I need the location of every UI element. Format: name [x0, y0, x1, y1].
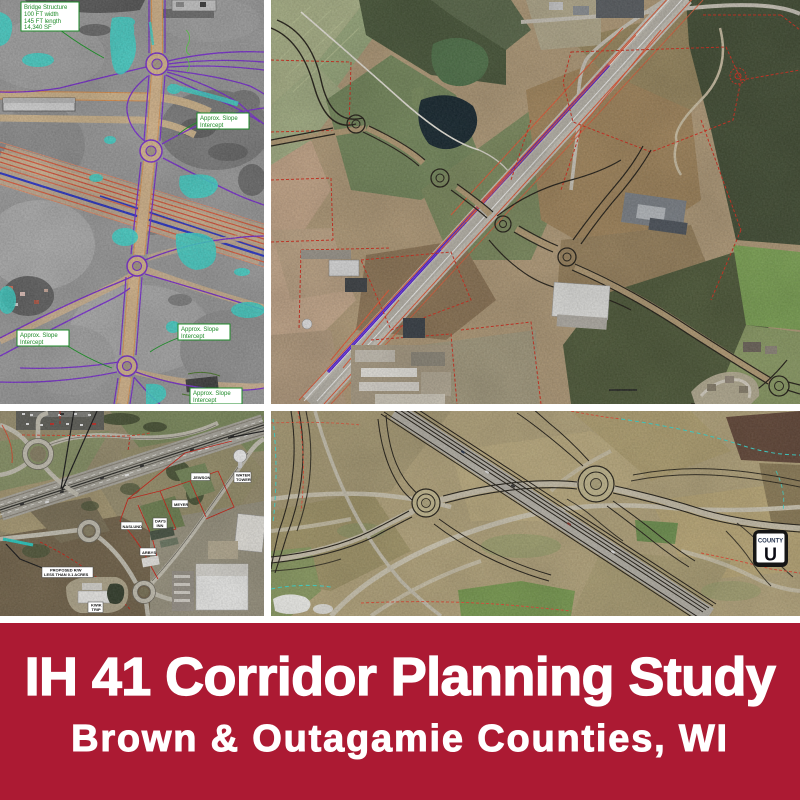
svg-text:JEWSON: JEWSON	[193, 475, 210, 480]
svg-text:LESS THAN 0.1 ACRES: LESS THAN 0.1 ACRES	[44, 572, 89, 577]
svg-text:Approx. Slope: Approx. Slope	[20, 333, 58, 339]
svg-text:U: U	[764, 545, 777, 565]
svg-text:Intercept: Intercept	[20, 340, 44, 346]
svg-text:Bridge Structure: Bridge Structure	[24, 5, 68, 11]
svg-text:Approx. Slope: Approx. Slope	[181, 327, 219, 333]
svg-text:TOWER: TOWER	[236, 477, 251, 482]
svg-text:Approx. Slope: Approx. Slope	[200, 116, 238, 122]
svg-text:Approx. Slope: Approx. Slope	[193, 391, 231, 397]
svg-text:ARBYS: ARBYS	[142, 550, 156, 555]
svg-text:14,340 SF: 14,340 SF	[24, 25, 52, 31]
svg-text:100 FT width: 100 FT width	[24, 12, 59, 18]
svg-text:Intercept: Intercept	[200, 123, 224, 129]
svg-text:Intercept: Intercept	[193, 398, 217, 404]
svg-text:NASLUND: NASLUND	[123, 524, 143, 529]
svg-text:MEYER: MEYER	[174, 502, 188, 507]
svg-text:INN: INN	[157, 523, 164, 528]
svg-text:TRIP: TRIP	[92, 607, 101, 612]
svg-text:Intercept: Intercept	[181, 334, 205, 340]
